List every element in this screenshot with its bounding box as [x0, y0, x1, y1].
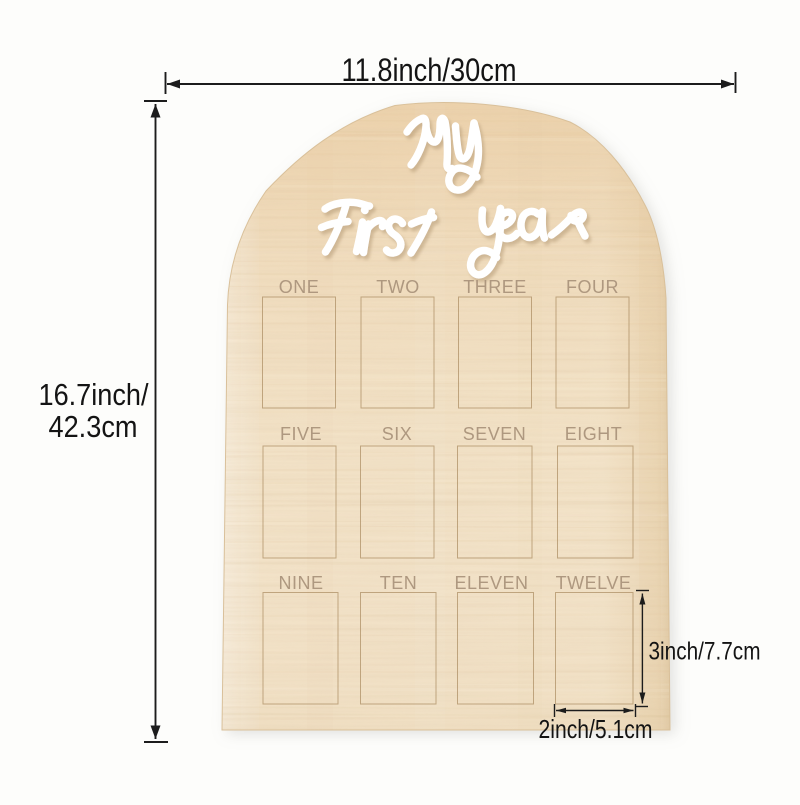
svg-text:ELEVEN: ELEVEN: [454, 573, 528, 593]
svg-text:2inch/5.1cm: 2inch/5.1cm: [539, 714, 653, 744]
svg-text:THREE: THREE: [463, 277, 527, 297]
svg-text:TWO: TWO: [376, 277, 420, 297]
svg-text:ONE: ONE: [279, 277, 320, 297]
svg-text:FIVE: FIVE: [280, 424, 322, 444]
svg-text:11.8inch/30cm: 11.8inch/30cm: [342, 52, 517, 88]
svg-text:SEVEN: SEVEN: [463, 424, 527, 444]
svg-text:FOUR: FOUR: [566, 277, 619, 297]
svg-text:3inch/7.7cm: 3inch/7.7cm: [649, 638, 761, 666]
svg-text:16.7inch/: 16.7inch/: [39, 377, 149, 412]
svg-text:SIX: SIX: [382, 424, 413, 444]
svg-text:EIGHT: EIGHT: [565, 424, 623, 444]
svg-text:TWELVE: TWELVE: [556, 573, 632, 593]
svg-text:NINE: NINE: [278, 573, 323, 593]
svg-text:42.3cm: 42.3cm: [49, 409, 138, 444]
svg-text:TEN: TEN: [380, 573, 418, 593]
